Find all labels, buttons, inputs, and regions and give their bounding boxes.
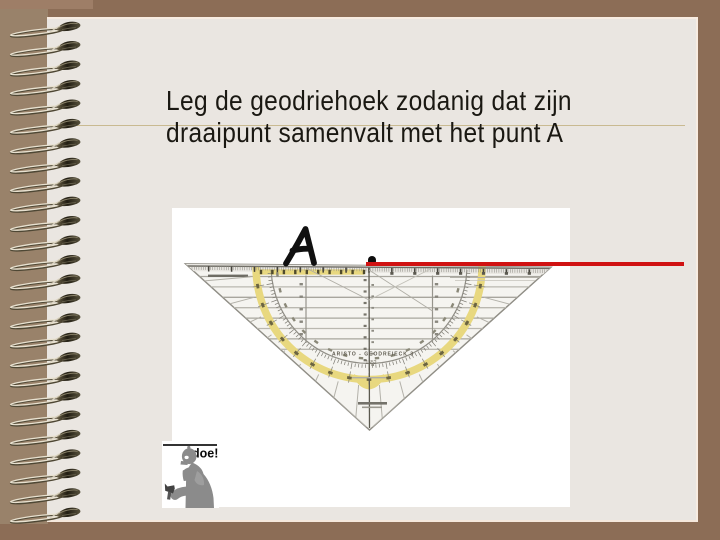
svg-text:ARISTO - GEODREIECK 3: ARISTO - GEODREIECK 3	[332, 352, 414, 358]
svg-text:1552: 1552	[365, 360, 376, 366]
